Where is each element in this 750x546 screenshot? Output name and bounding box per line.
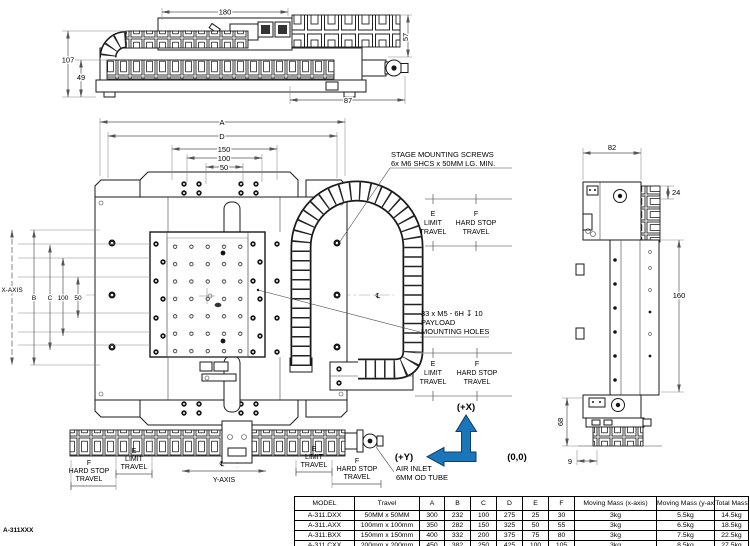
centerline-symbol-bottom: ℄ [219,461,225,468]
svg-text:TRAVEL: TRAVEL [121,464,148,471]
technical-drawing: 180 107 49 87 57 [0,0,750,546]
dim-24: 24 [672,188,680,197]
cell-f: 80 [549,531,575,541]
cell-b: 232 [445,511,471,521]
cell-mass-y: 5.5kg [657,511,715,521]
cell-mass-x: 3kg [575,521,657,531]
svg-text:E: E [312,446,317,453]
col-header-moving-mass-x: Moving Mass (x-axis) [575,497,657,511]
origin-label: (0,0) [507,452,527,463]
cell-b: 382 [445,541,471,546]
cell-f: 55 [549,521,575,531]
col-header-e: E [523,497,549,511]
cell-a: 450 [420,541,445,546]
svg-text:HARD STOP: HARD STOP [456,220,497,227]
dim-100-top: 100 [218,154,231,163]
cell-total-mass: 22.5kg [715,531,749,541]
table-row: A-311.AXX 100mm x 100mm 350 282 150 325 … [295,521,749,531]
cell-a: 400 [420,531,445,541]
cell-mass-x: 3kg [575,531,657,541]
col-header-model: MODEL [295,497,355,511]
svg-text:E: E [431,211,436,218]
dim-180: 180 [219,8,232,17]
cell-e: 50 [523,521,549,531]
cell-a: 350 [420,521,445,531]
svg-text:LIMIT: LIMIT [424,220,443,227]
dim-82: 82 [608,143,616,152]
cell-model: A-311.CXX [295,541,355,546]
cell-travel: 200mm x 200mm [355,541,420,546]
table-row: A-311.DXX 50MM x 50MM 300 232 100 275 25… [295,511,749,521]
cell-mass-x: 3kg [575,541,657,546]
svg-text:TRAVEL: TRAVEL [463,229,490,236]
svg-text:LIMIT: LIMIT [305,454,324,461]
col-header-f: F [549,497,575,511]
svg-text:MOUNTING HOLES: MOUNTING HOLES [421,327,489,336]
svg-text:AIR INLET: AIR INLET [396,464,432,473]
col-header-total-mass: Total Mass [715,497,749,511]
dim-50-top: 50 [220,163,228,172]
svg-text:6MM OD TUBE: 6MM OD TUBE [396,473,448,482]
travel-bottom-right: E LIMIT TRAVEL F HARD STOP TRAVEL [415,348,512,401]
svg-text:E: E [132,448,137,455]
col-header-c: C [471,497,497,511]
dim-A: A [219,118,224,127]
cell-d: 425 [497,541,523,546]
dim-68: 68 [556,418,565,426]
front-view: 180 107 49 87 57 [62,8,412,106]
cell-a: 300 [420,511,445,521]
cell-c: 250 [471,541,497,546]
cell-c: 100 [471,511,497,521]
svg-text:TRAVEL: TRAVEL [344,474,371,481]
drawing-sheet: 180 107 49 87 57 [0,0,750,546]
cell-mass-y: 7.5kg [657,531,715,541]
svg-text:TRAVEL: TRAVEL [464,379,491,386]
cell-travel: 150mm x 150mm [355,531,420,541]
cell-mass-y: 6.5kg [657,521,715,531]
cell-total-mass: 18.5kg [715,521,749,531]
dim-100-left: 100 [58,295,69,302]
svg-text:F: F [87,460,91,467]
table-header-row: MODEL Travel A B C D E F Moving Mass (x-… [295,497,749,511]
spec-table-container: MODEL Travel A B C D E F Moving Mass (x-… [294,496,749,546]
col-header-a: A [420,497,445,511]
svg-text:F: F [355,458,359,465]
cell-total-mass: 27.5kg [715,541,749,546]
cell-c: 150 [471,521,497,531]
xy-arrow-shape [427,415,477,466]
centerline-symbol-right: ℄ [375,293,381,300]
cell-total-mass: 14.5kg [715,511,749,521]
cell-d: 375 [497,531,523,541]
dim-B: B [32,295,36,302]
cell-b: 332 [445,531,471,541]
col-header-b: B [445,497,471,511]
col-header-moving-mass-y: Moving Mass (y-axis) [657,497,715,511]
svg-text:E: E [431,361,436,368]
dim-107: 107 [62,56,75,65]
svg-text:TRAVEL: TRAVEL [76,476,103,483]
svg-text:TRAVEL: TRAVEL [420,379,447,386]
cell-model: A-311.AXX [295,521,355,531]
svg-text:PAYLOAD: PAYLOAD [421,318,456,327]
cell-f: 105 [549,541,575,546]
dim-49: 49 [77,73,85,82]
svg-text:6x M6 SHCS x 50MM LG. MIN.: 6x M6 SHCS x 50MM LG. MIN. [391,159,495,168]
part-number: A-311XXX [3,527,33,534]
cell-b: 282 [445,521,471,531]
travel-top-right: E LIMIT TRAVEL F HARD STOP TRAVEL [420,194,512,251]
svg-text:TRAVEL: TRAVEL [301,462,328,469]
spec-table: MODEL Travel A B C D E F Moving Mass (x-… [294,496,749,546]
table-row: A-311.CXX 200mm x 200mm 450 382 250 425 … [295,541,749,546]
table-row: A-311.BXX 150mm x 150mm 400 332 200 375 … [295,531,749,541]
svg-text:HARD STOP: HARD STOP [69,468,110,475]
cell-mass-x: 3kg [575,511,657,521]
cell-travel: 50MM x 50MM [355,511,420,521]
cell-c: 200 [471,531,497,541]
svg-text:STAGE MOUNTING SCREWS: STAGE MOUNTING SCREWS [391,150,494,159]
cell-model: A-311.BXX [295,531,355,541]
dim-160: 160 [673,291,686,300]
dim-87: 87 [344,96,352,105]
x-axis-label: X-AXIS [1,287,23,294]
coordinate-arrows: (+X) (+Y) (0,0) [395,402,527,466]
dim-57: 57 [401,33,410,41]
dim-150: 150 [218,145,231,154]
cell-mass-y: 8.5kg [657,541,715,546]
svg-text:HARD STOP: HARD STOP [457,370,498,377]
y-axis-label: Y-AXIS [213,477,236,484]
plus-x-label: (+X) [457,402,475,413]
svg-text:F: F [474,211,478,218]
dim-9: 9 [568,457,572,466]
side-view: 82 24 160 68 9 [556,143,685,466]
plan-view: ℄ A D 150 100 50 X-AXIS B C 100 50 E LIM… [1,118,512,490]
cell-e: 75 [523,531,549,541]
cell-model: A-311.DXX [295,511,355,521]
dim-C: C [48,295,53,302]
cell-d: 275 [497,511,523,521]
cell-d: 325 [497,521,523,531]
svg-text:LIMIT: LIMIT [125,456,144,463]
dim-50-left: 50 [74,295,82,302]
plus-y-label: (+Y) [395,452,413,463]
svg-text:LIMIT: LIMIT [424,370,443,377]
svg-text:HARD STOP: HARD STOP [337,466,378,473]
svg-text:33 x M5 - 6H ↧ 10: 33 x M5 - 6H ↧ 10 [421,309,483,318]
cell-e: 25 [523,511,549,521]
cell-travel: 100mm x 100mm [355,521,420,531]
cell-f: 30 [549,511,575,521]
cell-e: 100 [523,541,549,546]
svg-text:TRAVEL: TRAVEL [420,229,447,236]
col-header-d: D [497,497,523,511]
col-header-travel: Travel [355,497,420,511]
dim-D: D [219,132,225,141]
svg-text:F: F [475,361,479,368]
